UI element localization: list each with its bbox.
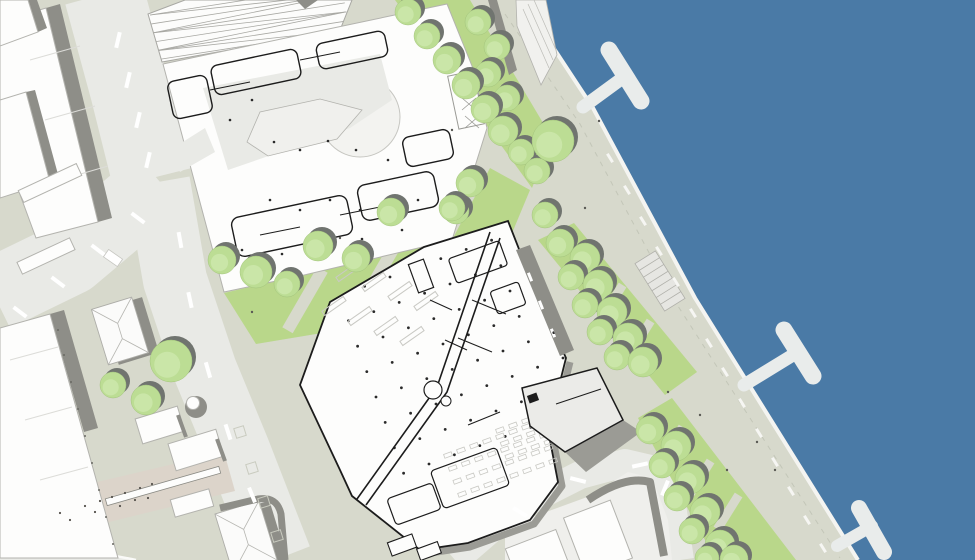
spiral-stair-drum: [424, 381, 442, 399]
spiral-stair-drum-small: [441, 396, 451, 406]
round-kiosk: [187, 397, 200, 410]
site-plan-stage: [0, 0, 975, 560]
site-plan-canvas: [0, 0, 975, 560]
road-main-north: [104, 0, 152, 178]
